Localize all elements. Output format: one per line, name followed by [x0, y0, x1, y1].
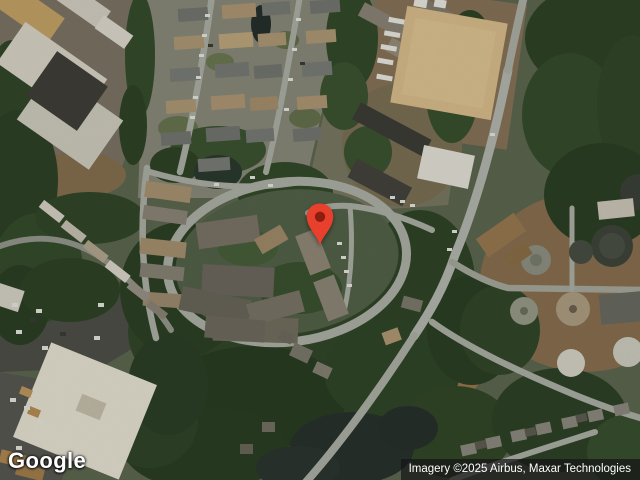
google-maps-satellite-view[interactable]: Google Imagery ©2025 Airbus, Maxar Techn… — [0, 0, 640, 480]
pin-body — [307, 204, 333, 246]
google-logo[interactable]: Google — [8, 448, 86, 474]
pin-dot — [315, 212, 325, 222]
map-pin-marker[interactable] — [306, 203, 334, 247]
imagery-attribution: Imagery ©2025 Airbus, Maxar Technologies — [401, 459, 640, 480]
